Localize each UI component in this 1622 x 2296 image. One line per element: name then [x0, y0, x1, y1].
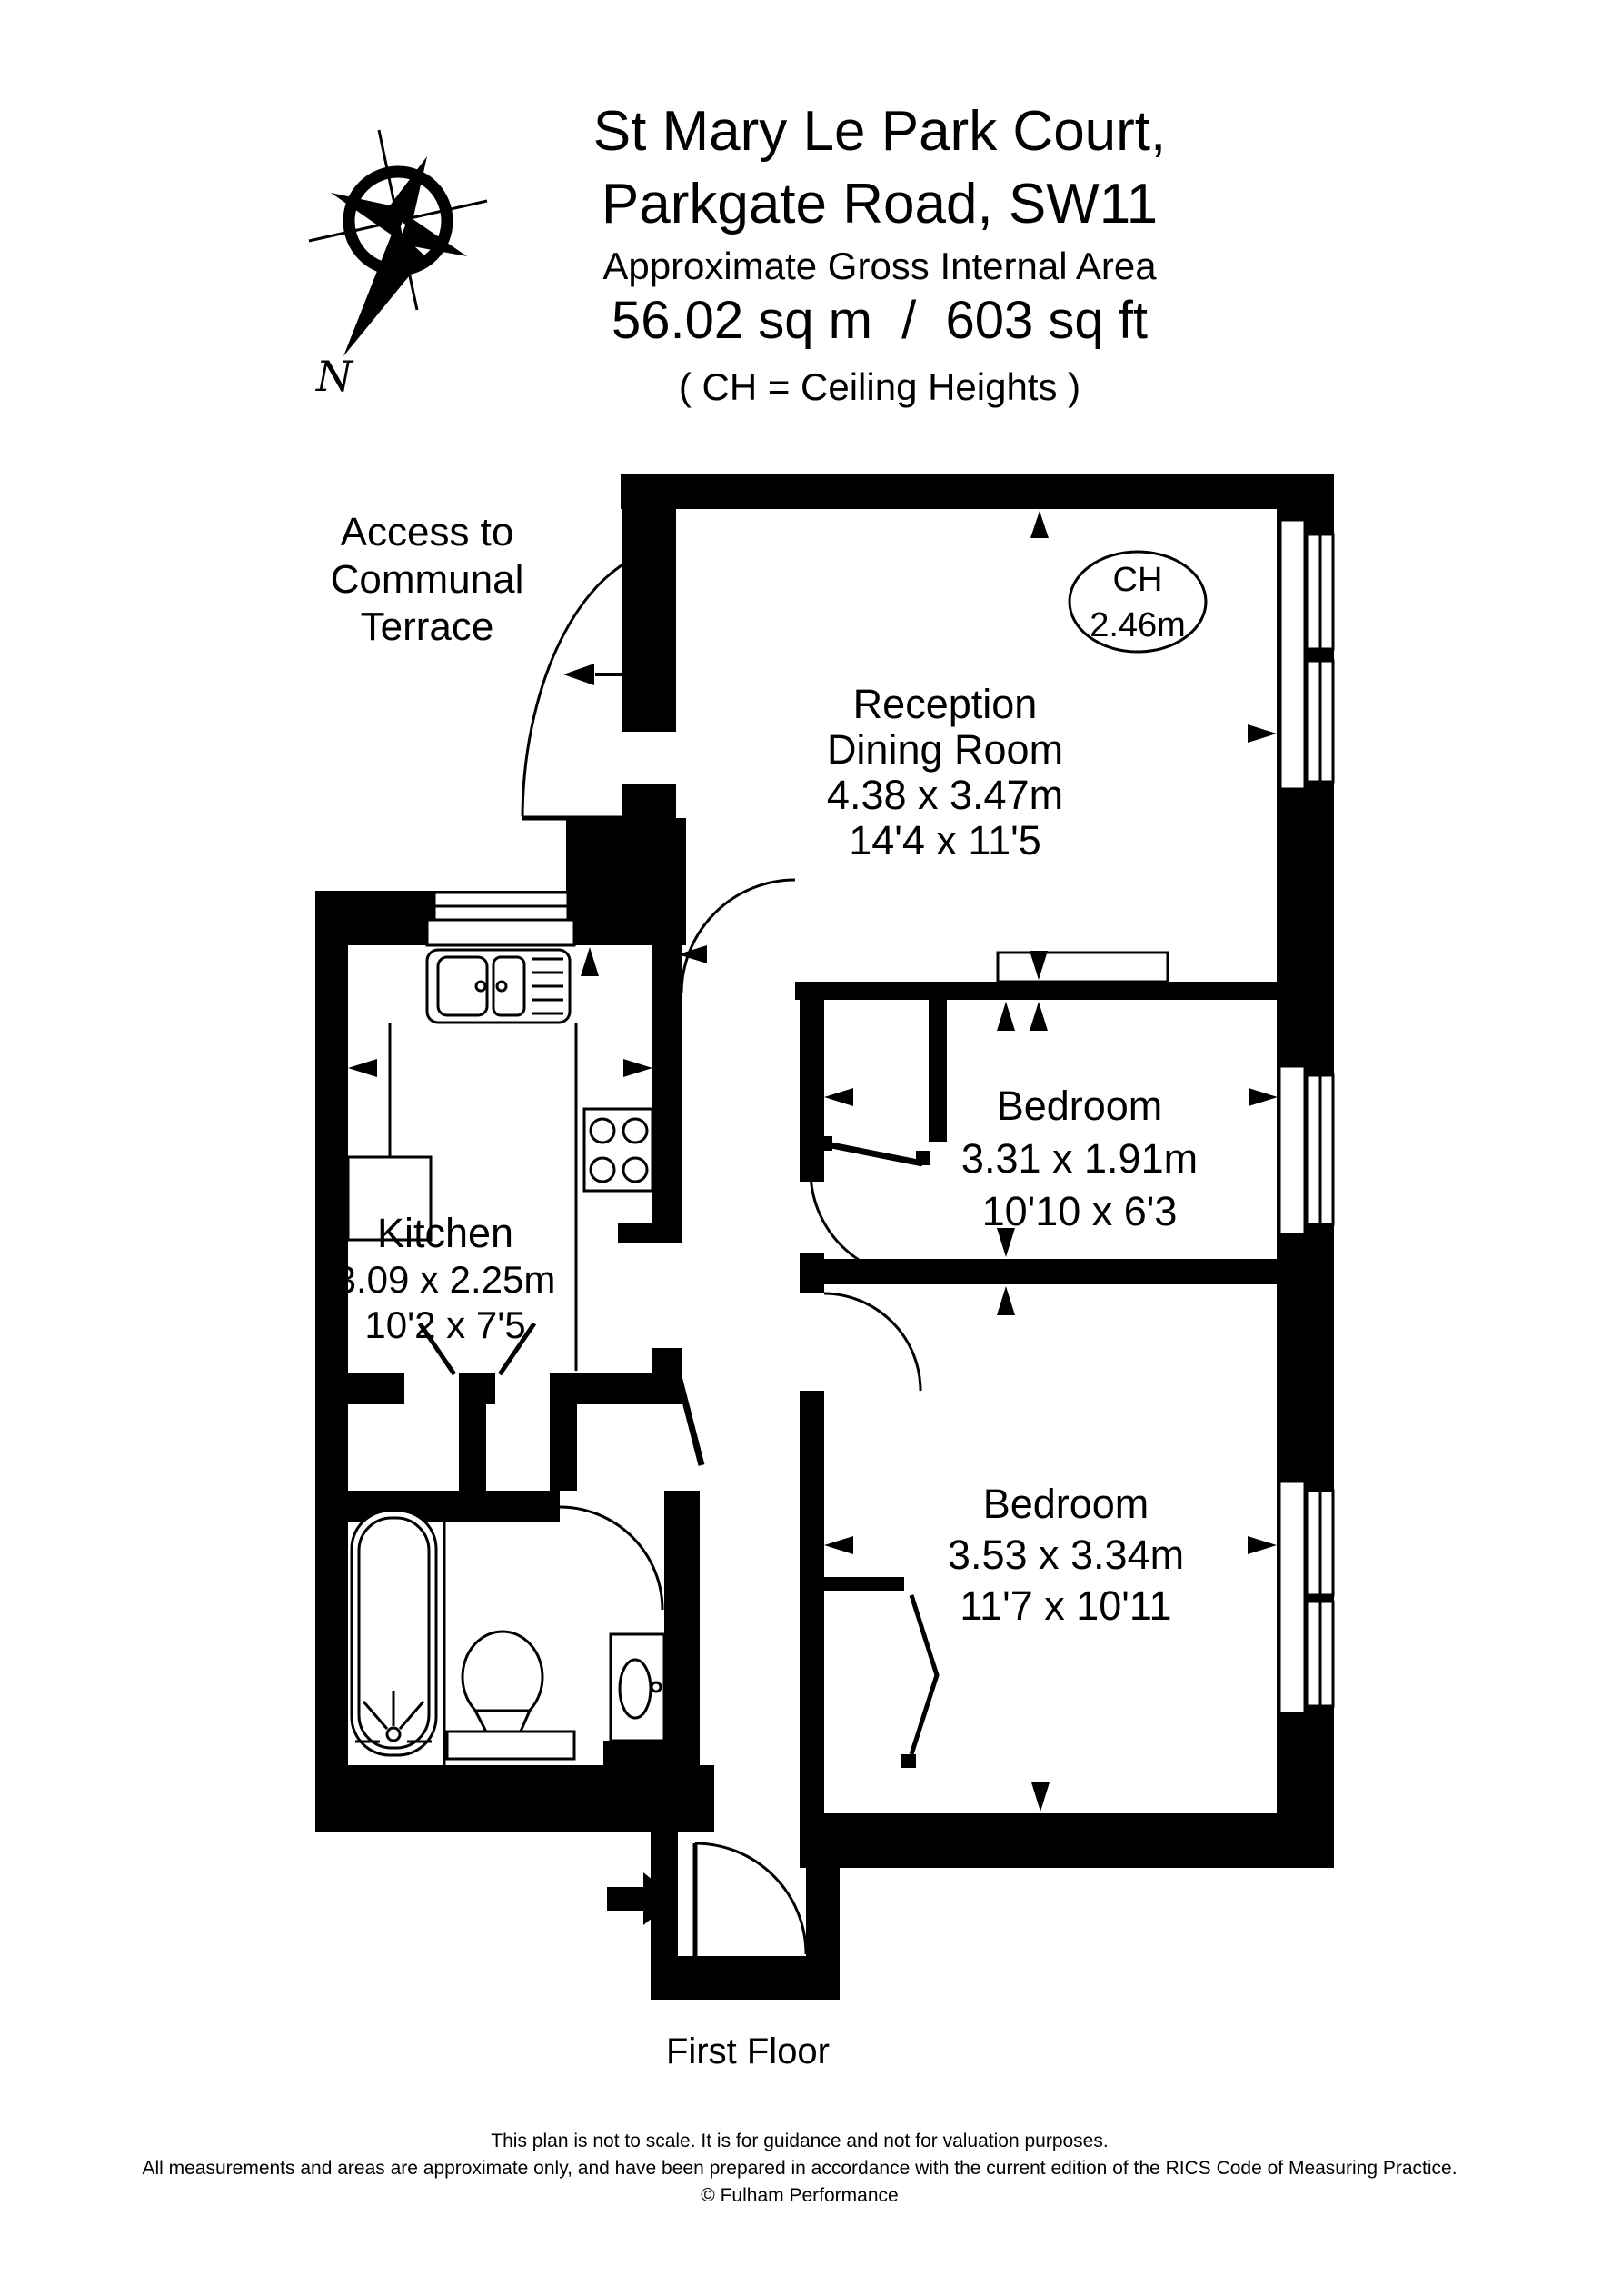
- terrace-door-notch: [645, 732, 676, 784]
- disclaimer-line2: All measurements and areas are approxima…: [142, 2158, 1457, 2179]
- page-title-line1: St Mary Le Park Court,: [593, 100, 1167, 163]
- wall-reception-bedroom-divider: [795, 982, 1277, 1000]
- ceiling-height-badge: CH 2.46m: [1070, 552, 1206, 652]
- arrow-kitchen-right: [623, 1059, 652, 1077]
- wardrobe-bifold-door: [911, 1595, 937, 1754]
- reception-name2: Dining Room: [827, 726, 1063, 773]
- floorplan-canvas: St Mary Le Park Court, Parkgate Road, SW…: [0, 0, 1622, 2296]
- terrace-label-line3: Terrace: [361, 604, 494, 649]
- floorplan-page: St Mary Le Park Court, Parkgate Road, SW…: [0, 0, 1622, 2296]
- wall-bedrooms-divider: [824, 1259, 1277, 1284]
- wall-top: [621, 474, 1334, 509]
- reception-dim-imperial: 14'4 x 11'5: [849, 817, 1041, 863]
- reception-hall-door-arc: [682, 880, 795, 993]
- arrow-bedroom-small-right: [1249, 1088, 1278, 1106]
- ch-badge-value: 2.46m: [1090, 606, 1186, 644]
- bedroom-large-name: Bedroom: [983, 1481, 1149, 1527]
- reception-window-sill: [1280, 520, 1305, 789]
- wall-bathroom-top: [315, 1491, 560, 1522]
- fixtures: [348, 950, 1168, 1765]
- wall-reception-left-upper: [622, 509, 676, 732]
- arrow-bedroom-large-left: [824, 1536, 853, 1554]
- wall-wardrobe-jamb: [901, 1754, 916, 1768]
- reception-name1: Reception: [853, 681, 1038, 727]
- bedroom-large-dim-imperial: 11'7 x 10'11: [960, 1582, 1171, 1629]
- reception-dim-metric: 4.38 x 3.47m: [827, 772, 1063, 818]
- hob-icon: [584, 1109, 652, 1191]
- terrace-direction-arrowhead: [563, 664, 594, 685]
- bedroom-large-window-sill: [1279, 1482, 1305, 1713]
- wall-kitchen-door-stub: [618, 1223, 675, 1243]
- closet-door-leaf: [822, 1143, 922, 1163]
- bathtub-icon: [352, 1511, 436, 1755]
- bedroom-small-dim-imperial: 10'10 x 6'3: [982, 1188, 1178, 1234]
- terrace-label-line2: Communal: [331, 557, 524, 602]
- basin-icon: [611, 1634, 664, 1741]
- wall-cell-divider-2: [550, 1404, 577, 1491]
- header-subtitle: Approximate Gross Internal Area: [602, 245, 1157, 287]
- header: St Mary Le Park Court, Parkgate Road, SW…: [593, 100, 1167, 408]
- arrow-bedroom-large-down: [1031, 1782, 1050, 1812]
- arrow-reception-right: [1248, 724, 1277, 743]
- wall-cupboard-c: [550, 1373, 652, 1404]
- kitchen-name: Kitchen: [377, 1210, 513, 1256]
- arrow-bedroom-small-up: [997, 1002, 1015, 1031]
- ch-badge-label: CH: [1113, 561, 1163, 599]
- bedroom-large-dim-metric: 3.53 x 3.34m: [948, 1532, 1184, 1578]
- wall-reception-left-mid: [622, 784, 676, 818]
- wall-wardrobe-stub: [824, 1577, 904, 1591]
- wall-bathroom-bottom: [315, 1765, 714, 1832]
- floor-label: First Floor: [666, 2031, 830, 2071]
- arrow-bedroom-large-right: [1248, 1536, 1277, 1554]
- wall-cupboard-a: [348, 1373, 404, 1404]
- wall-hall-east-3: [800, 1391, 824, 1813]
- sink-icon: [427, 950, 570, 1023]
- arrow-reception-up: [1030, 511, 1049, 538]
- arrow-bedroom-large-up: [997, 1286, 1015, 1315]
- toilet-icon: [447, 1632, 574, 1759]
- wall-bedroom-bottom: [800, 1813, 1334, 1868]
- wall-left-exterior: [315, 891, 348, 1832]
- header-area: 56.02 sq m / 603 sq ft: [612, 291, 1148, 350]
- wall-closet-right: [929, 1000, 947, 1142]
- bedroom-small-label: Bedroom 3.31 x 1.91m 10'10 x 6'3: [961, 1083, 1198, 1234]
- bedroom-small-dim-metric: 3.31 x 1.91m: [961, 1135, 1198, 1182]
- kitchen-dim-imperial: 10'2 x 7'5: [364, 1303, 525, 1346]
- kitchen-window-sill: [427, 920, 574, 945]
- bathroom-door-arc: [560, 1507, 662, 1610]
- disclaimer: This plan is not to scale. It is for gui…: [142, 2131, 1457, 2206]
- disclaimer-line3: © Fulham Performance: [701, 2185, 898, 2206]
- wall-cell-divider-1: [459, 1404, 486, 1491]
- floor-plan: Access to Communal Terrace CH 2.46m Rece…: [315, 474, 1334, 2000]
- wall-bathroom-right: [664, 1491, 700, 1765]
- header-ch-note: ( CH = Ceiling Heights ): [679, 365, 1080, 408]
- wall-entry-threshold: [651, 1956, 814, 2000]
- kitchen-door-leaf: [672, 1352, 702, 1465]
- terrace-access: Access to Communal Terrace: [331, 510, 656, 685]
- wall-hall-east-2: [800, 1253, 824, 1293]
- compass-icon: N: [309, 130, 487, 401]
- arrow-kitchen-up: [581, 947, 599, 976]
- reception-label: Reception Dining Room 4.38 x 3.47m 14'4 …: [827, 681, 1063, 863]
- terrace-label-line1: Access to: [341, 510, 514, 554]
- wall-cupboard-b: [459, 1373, 495, 1404]
- bedroom-large-door-arc: [824, 1293, 920, 1391]
- wall-hall-east-1: [800, 1000, 824, 1182]
- arrow-bedroom-small-up-wall: [1030, 1002, 1048, 1031]
- bedroom-large-label: Bedroom 3.53 x 3.34m 11'7 x 10'11: [948, 1481, 1184, 1629]
- bedroom-small-window-sill: [1279, 1066, 1305, 1234]
- page-title-line2: Parkgate Road, SW11: [602, 173, 1158, 235]
- kitchen-dim-metric: 3.09 x 2.25m: [335, 1258, 556, 1301]
- entrance-door-arc: [695, 1843, 806, 1954]
- arrow-bedroom-small-left: [824, 1088, 853, 1106]
- compass-north-label: N: [315, 352, 354, 401]
- radiator: [998, 953, 1168, 982]
- wall-basin-nook: [603, 1741, 700, 1768]
- bedroom-small-name: Bedroom: [997, 1083, 1163, 1129]
- arrow-kitchen-left: [348, 1059, 377, 1077]
- disclaimer-line1: This plan is not to scale. It is for gui…: [491, 2131, 1108, 2151]
- wall-kitchen-right-upper: [652, 945, 682, 1243]
